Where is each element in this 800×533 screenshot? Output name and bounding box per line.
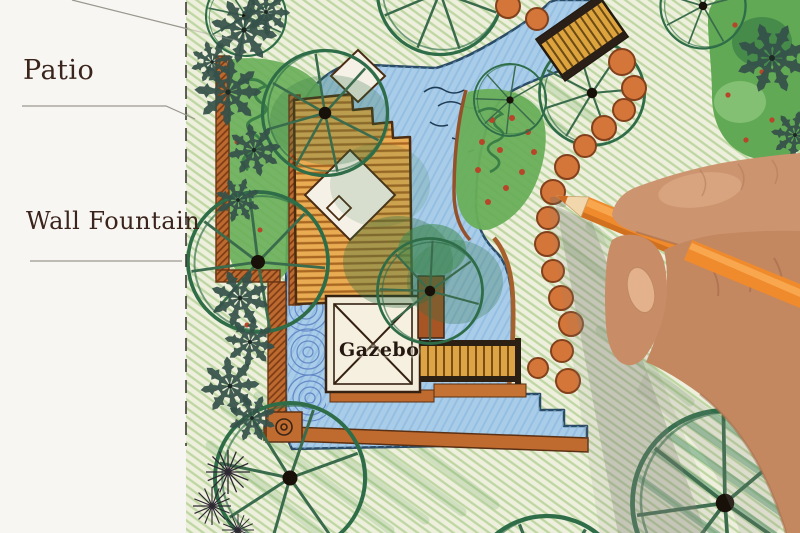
wall-fountain-label: Wall Fountain	[26, 209, 200, 233]
gazebo-label: Gazebo	[339, 341, 419, 360]
landscape-plan-photo: Patio Wall Fountain Gazebo	[0, 0, 800, 533]
plan-drawing	[0, 0, 800, 533]
boardwalk	[420, 338, 521, 384]
patio-label: Patio	[23, 57, 94, 84]
